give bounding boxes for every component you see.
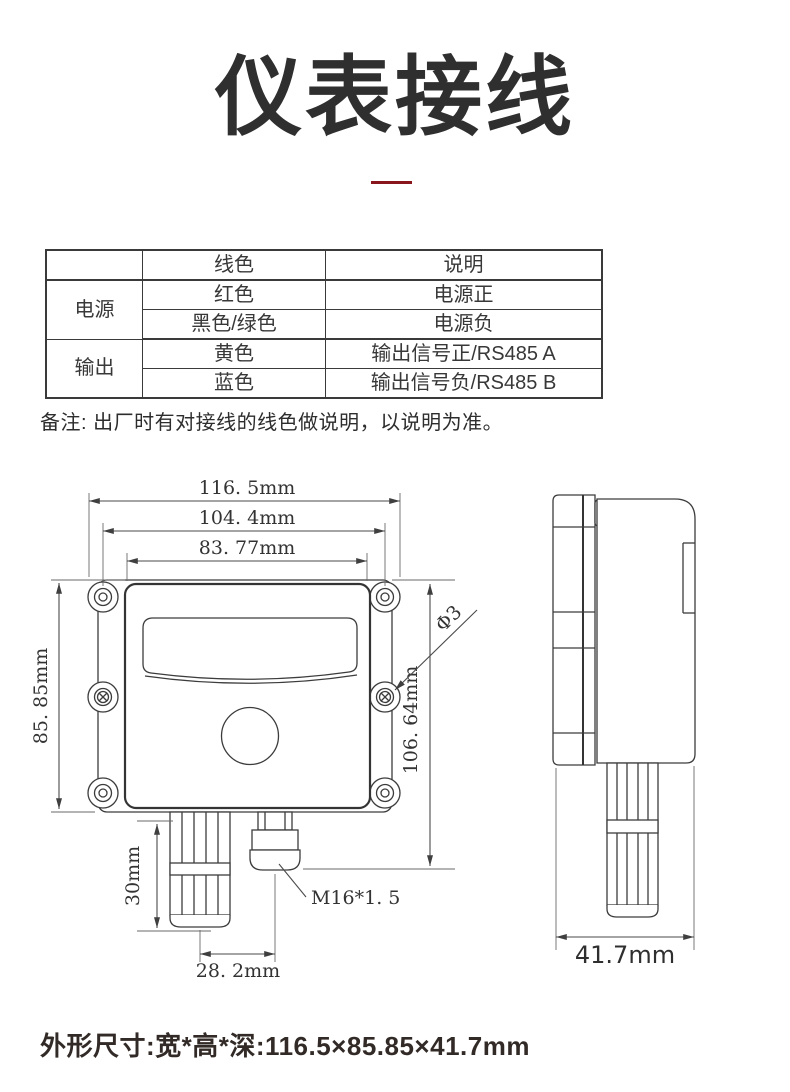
page: 仪表接线 线色 说明 电源 红色 电源正 黑色/绿色 电源负 输出 黄色 输出信… [0,0,790,1092]
wire-desc-cell: 输出信号正/RS485 A [326,339,603,369]
wire-desc-cell: 电源负 [326,310,603,340]
title-divider [371,181,412,184]
svg-text:41.7mm: 41.7mm [575,941,675,969]
group-label-output: 输出 [46,339,143,398]
svg-text:28. 2mm: 28. 2mm [196,960,280,982]
gland-callout: M16*1. 5 [279,864,400,909]
cable-gland [250,812,300,870]
mount-ear [88,582,118,612]
front-view: 116. 5mm 104. 4mm 83. 77mm 85. 8 [30,477,477,982]
svg-text:Φ3: Φ3 [431,601,466,636]
svg-text:30mm: 30mm [122,846,144,906]
wiring-table: 线色 说明 电源 红色 电源正 黑色/绿色 电源负 输出 黄色 输出信号正/RS… [45,249,603,399]
svg-text:85. 85mm: 85. 85mm [30,648,52,744]
side-body [597,499,695,763]
wire-color-cell: 黄色 [143,339,326,369]
col-header-description: 说明 [326,250,603,280]
group-label-power: 电源 [46,280,143,339]
note-text: 备注: 出厂时有对接线的线色做说明，以说明为准。 [40,406,503,435]
table-row: 电源 红色 电源正 [46,280,602,310]
wire-color-cell: 红色 [143,280,326,310]
col-header-wire-color: 线色 [143,250,326,280]
svg-text:116. 5mm: 116. 5mm [199,477,295,499]
corner-cell [46,250,143,280]
page-title: 仪表接线 [0,48,790,148]
dimension-drawing: 116. 5mm 104. 4mm 83. 77mm 85. 8 [25,460,765,1010]
svg-text:83. 77mm: 83. 77mm [199,537,295,559]
svg-text:M16*1. 5: M16*1. 5 [311,887,400,909]
mount-ear [370,582,400,612]
mount-ear [370,778,400,808]
side-view: 41.7mm [553,495,695,969]
probe [170,812,230,927]
wire-desc-cell: 电源正 [326,280,603,310]
overall-dimensions-text: 外形尺寸:宽*高*深:116.5×85.85×41.7mm [40,1026,530,1063]
side-plate [553,495,595,765]
side-probe [607,763,658,917]
svg-text:104. 4mm: 104. 4mm [199,507,295,529]
wire-desc-cell: 输出信号负/RS485 B [326,369,603,399]
wire-color-cell: 蓝色 [143,369,326,399]
table-header-row: 线色 说明 [46,250,602,280]
mount-ear [88,778,118,808]
wire-color-cell: 黑色/绿色 [143,310,326,340]
dim-width-mount-inner: 83. 77mm [127,537,367,581]
table-row: 输出 黄色 输出信号正/RS485 A [46,339,602,369]
